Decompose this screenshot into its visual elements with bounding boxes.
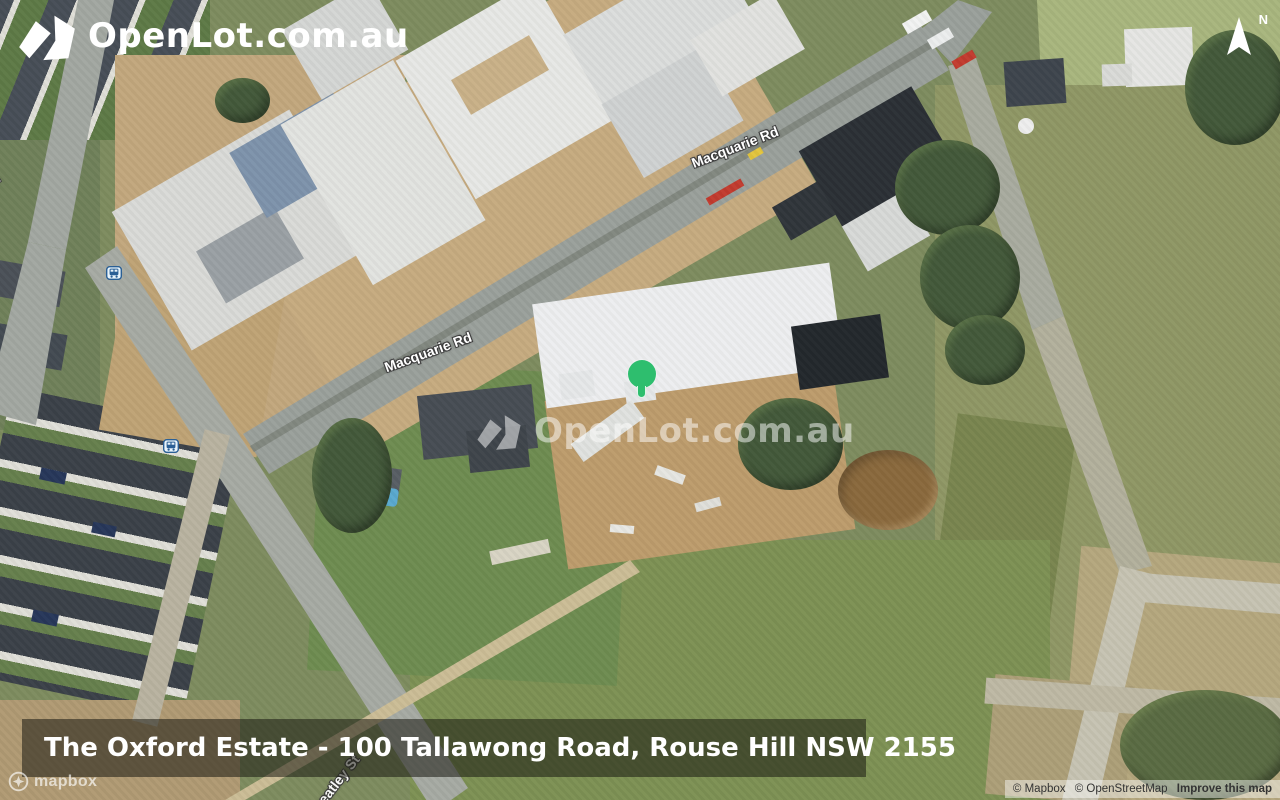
trees-right-cluster-1 [895,140,1000,235]
trees-estate [312,418,392,533]
bus-icon [163,439,179,453]
bus-icon [106,266,122,280]
caption-text: The Oxford Estate - 100 Tallawong Road, … [22,733,956,763]
terrain-white-dot [1018,118,1034,134]
bus-stop-icon [106,266,122,280]
trees-right-cluster-2 [920,225,1020,330]
mapbox-wordmark[interactable]: mapbox [8,771,97,792]
osm-attribution-link[interactable]: © OpenStreetMap [1075,783,1168,795]
caption-bar: The Oxford Estate - 100 Tallawong Road, … [22,719,866,777]
building-slab-notch-1 [558,370,595,400]
mapbox-wordmark-text: mapbox [34,773,97,791]
building-top-right-house [1004,58,1067,107]
improve-this-map-link[interactable]: Improve this map [1177,783,1272,795]
north-compass-control[interactable]: N [1224,12,1268,60]
openlot-logo-icon [16,10,78,62]
trees-right-cluster-3 [945,315,1025,385]
tree-top-left [215,78,270,123]
map-attribution: © Mapbox © OpenStreetMap Improve this ma… [1005,780,1280,798]
north-arrow-icon [1224,17,1254,59]
terrain-pond [838,450,938,530]
marker-stem [637,386,646,398]
watermark: OpenLot.com.au [476,410,855,452]
marker-ball [628,360,656,388]
map-canvas[interactable]: Macquarie Rd Macquarie Rd Tallawong Rd W… [0,0,1280,800]
mapbox-logo-icon [8,771,29,792]
building-top-right-shed-2 [1102,63,1133,86]
bus-stop-icon [163,439,179,453]
green-location-marker[interactable] [628,360,656,398]
watermark-text: OpenLot.com.au [534,411,855,451]
openlot-logo[interactable]: OpenLot.com.au [16,10,409,62]
openlot-logo-text: OpenLot.com.au [88,16,409,56]
building-top-right-shed [1124,27,1194,87]
mapbox-attribution-link[interactable]: © Mapbox [1013,783,1066,795]
building-slab-dark-panel [791,314,889,390]
north-label: N [1259,12,1268,27]
openlot-logo-watermark-icon [476,410,522,452]
